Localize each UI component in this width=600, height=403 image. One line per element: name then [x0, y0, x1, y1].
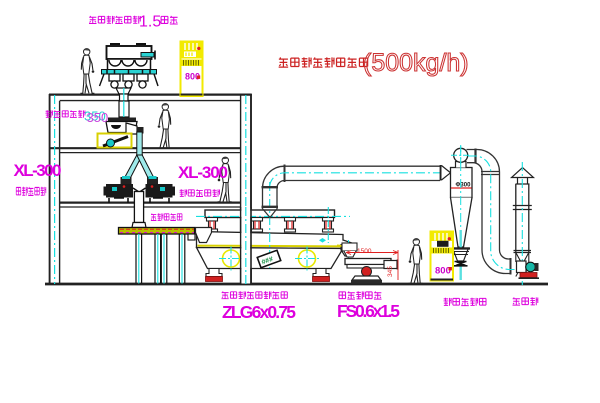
svg-text:(500kg/h): (500kg/h): [363, 49, 469, 77]
svg-text:800: 800: [435, 266, 451, 277]
svg-text:1500: 1500: [357, 248, 372, 255]
svg-text:XL-300: XL-300: [14, 161, 62, 180]
svg-text:1.5: 1.5: [139, 14, 161, 31]
svg-text:350: 350: [87, 110, 109, 125]
svg-text:FS0.6x1.5: FS0.6x1.5: [337, 301, 400, 321]
svg-text:ZLG6x0.75: ZLG6x0.75: [222, 302, 296, 322]
svg-text:XL-300: XL-300: [178, 163, 228, 182]
svg-text:345: 345: [387, 266, 394, 277]
